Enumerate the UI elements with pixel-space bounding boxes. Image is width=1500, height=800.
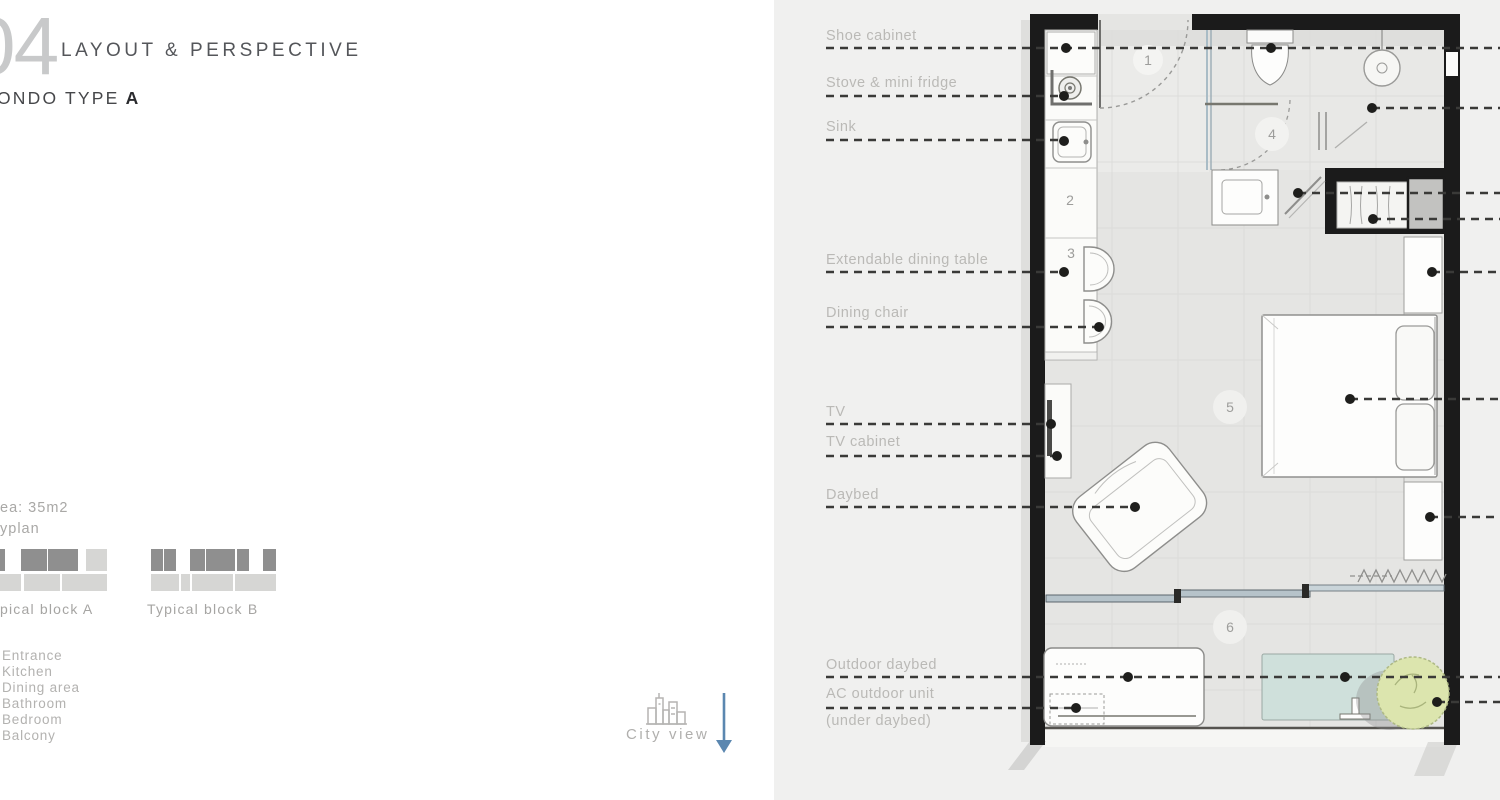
room-number-dining-area: 3 [1067, 245, 1075, 261]
plan-label-tv: TV [826, 404, 846, 420]
toilet-tank [1247, 30, 1293, 43]
sink [1053, 122, 1091, 162]
pillow [1396, 404, 1434, 470]
pillow [1396, 326, 1434, 400]
plan-label-outdoor-daybed: Outdoor daybed [826, 657, 937, 673]
service-shaft [1408, 178, 1444, 230]
floor-plan: 1 2 3 4 5 6 [0, 0, 1500, 800]
plan-label-daybed: Daybed [826, 487, 879, 503]
room-number-balcony: 6 [1226, 619, 1234, 635]
plan-label-ac-outdoor-unit: AC outdoor unit [826, 686, 934, 702]
plan-label-tv-cabinet: TV cabinet [826, 434, 900, 450]
shower-head [1364, 50, 1400, 86]
shoe-cabinet [1047, 32, 1095, 74]
outdoor-daybed [1044, 648, 1204, 726]
room-number-entrance: 1 [1144, 52, 1152, 68]
nightstand-bottom [1404, 482, 1442, 560]
plan-label-stove-fridge: Stove & mini fridge [826, 75, 957, 91]
plan-label-shoe-cabinet: Shoe cabinet [826, 28, 917, 44]
tv-cabinet [1045, 384, 1071, 478]
room-number-bedroom: 5 [1226, 399, 1234, 415]
room-number-kitchen: 2 [1066, 192, 1074, 208]
plan-label-dining-chair: Dining chair [826, 305, 909, 321]
nightstand-top [1404, 237, 1442, 313]
plan-label-dining-table: Extendable dining table [826, 252, 988, 268]
plan-label-under-daybed: (under daybed) [826, 713, 931, 729]
plan-label-sink: Sink [826, 119, 856, 135]
slide-canvas: 04 LAYOUT & PERSPECTIVE ONDO TYPEA ea: 3… [0, 0, 1500, 800]
room-number-bathroom: 4 [1268, 126, 1276, 142]
